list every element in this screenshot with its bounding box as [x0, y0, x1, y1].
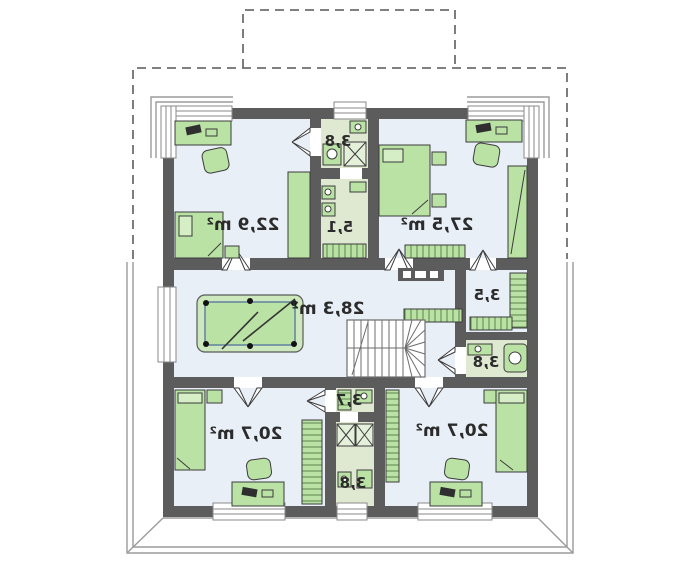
- bedside-table-icon: [432, 194, 446, 207]
- sideboard-icon: [398, 268, 444, 281]
- desk-icon: [466, 120, 522, 142]
- room-label-bedroom-bottom-left: 20,7 m²: [209, 424, 282, 444]
- room-label-wardrobe-bottom: 3,7: [336, 391, 363, 409]
- pillow-icon: [499, 393, 524, 403]
- bedside-table-icon: [207, 390, 222, 403]
- room-label-bathroom-right: 3,8: [473, 353, 500, 371]
- bedside-table-icon: [432, 152, 446, 165]
- chair-icon: [246, 457, 273, 480]
- floor-plan-canvas: 22,9 m² 3,8 5,1 27,5 m² 28,3 m² 3,5 3,8 …: [0, 0, 700, 575]
- bench-icon: [323, 244, 366, 258]
- room-label-bathroom-top: 3,8: [325, 132, 352, 150]
- floor-plan-svg: 22,9 m² 3,8 5,1 27,5 m² 28,3 m² 3,5 3,8 …: [0, 0, 700, 575]
- dormer-outline-dashed: [243, 10, 455, 68]
- chair-icon: [444, 457, 471, 480]
- shelf-icon: [350, 182, 366, 192]
- window-bottom-middle: [337, 503, 367, 520]
- room-label-laundry-top: 5,1: [327, 218, 354, 236]
- bedside-table-icon: [225, 246, 239, 258]
- pillow-icon: [179, 216, 192, 236]
- shelving-icon: [510, 273, 527, 328]
- room-label-bedroom-bottom-right: 20,7 m²: [415, 421, 488, 441]
- staircase-icon: [347, 320, 425, 377]
- chair-icon: [472, 142, 500, 168]
- billiard-table-icon: [197, 295, 303, 352]
- window-left-hall: [158, 287, 176, 362]
- desk-icon: [175, 121, 231, 145]
- chair-icon: [201, 147, 230, 175]
- room-label-hall: 28,3 m²: [291, 299, 364, 319]
- bench-icon: [470, 317, 512, 330]
- desk-icon: [232, 482, 284, 506]
- pillow-icon: [383, 149, 403, 162]
- room-label-bedroom-top-right: 27,5 m²: [400, 215, 473, 235]
- pillow-icon: [178, 393, 202, 403]
- wardrobe-icon: [386, 390, 399, 482]
- room-label-bathroom-bottom: 3,8: [340, 474, 367, 492]
- wardrobe-icon: [302, 420, 322, 504]
- room-label-bedroom-top-left: 22,9 m²: [206, 215, 279, 235]
- window-top-middle: [334, 102, 366, 119]
- room-label-wardrobe-right: 3,5: [474, 286, 501, 304]
- sofa-icon: [405, 245, 465, 258]
- desk-icon: [430, 482, 482, 506]
- wardrobe-icon: [288, 172, 310, 258]
